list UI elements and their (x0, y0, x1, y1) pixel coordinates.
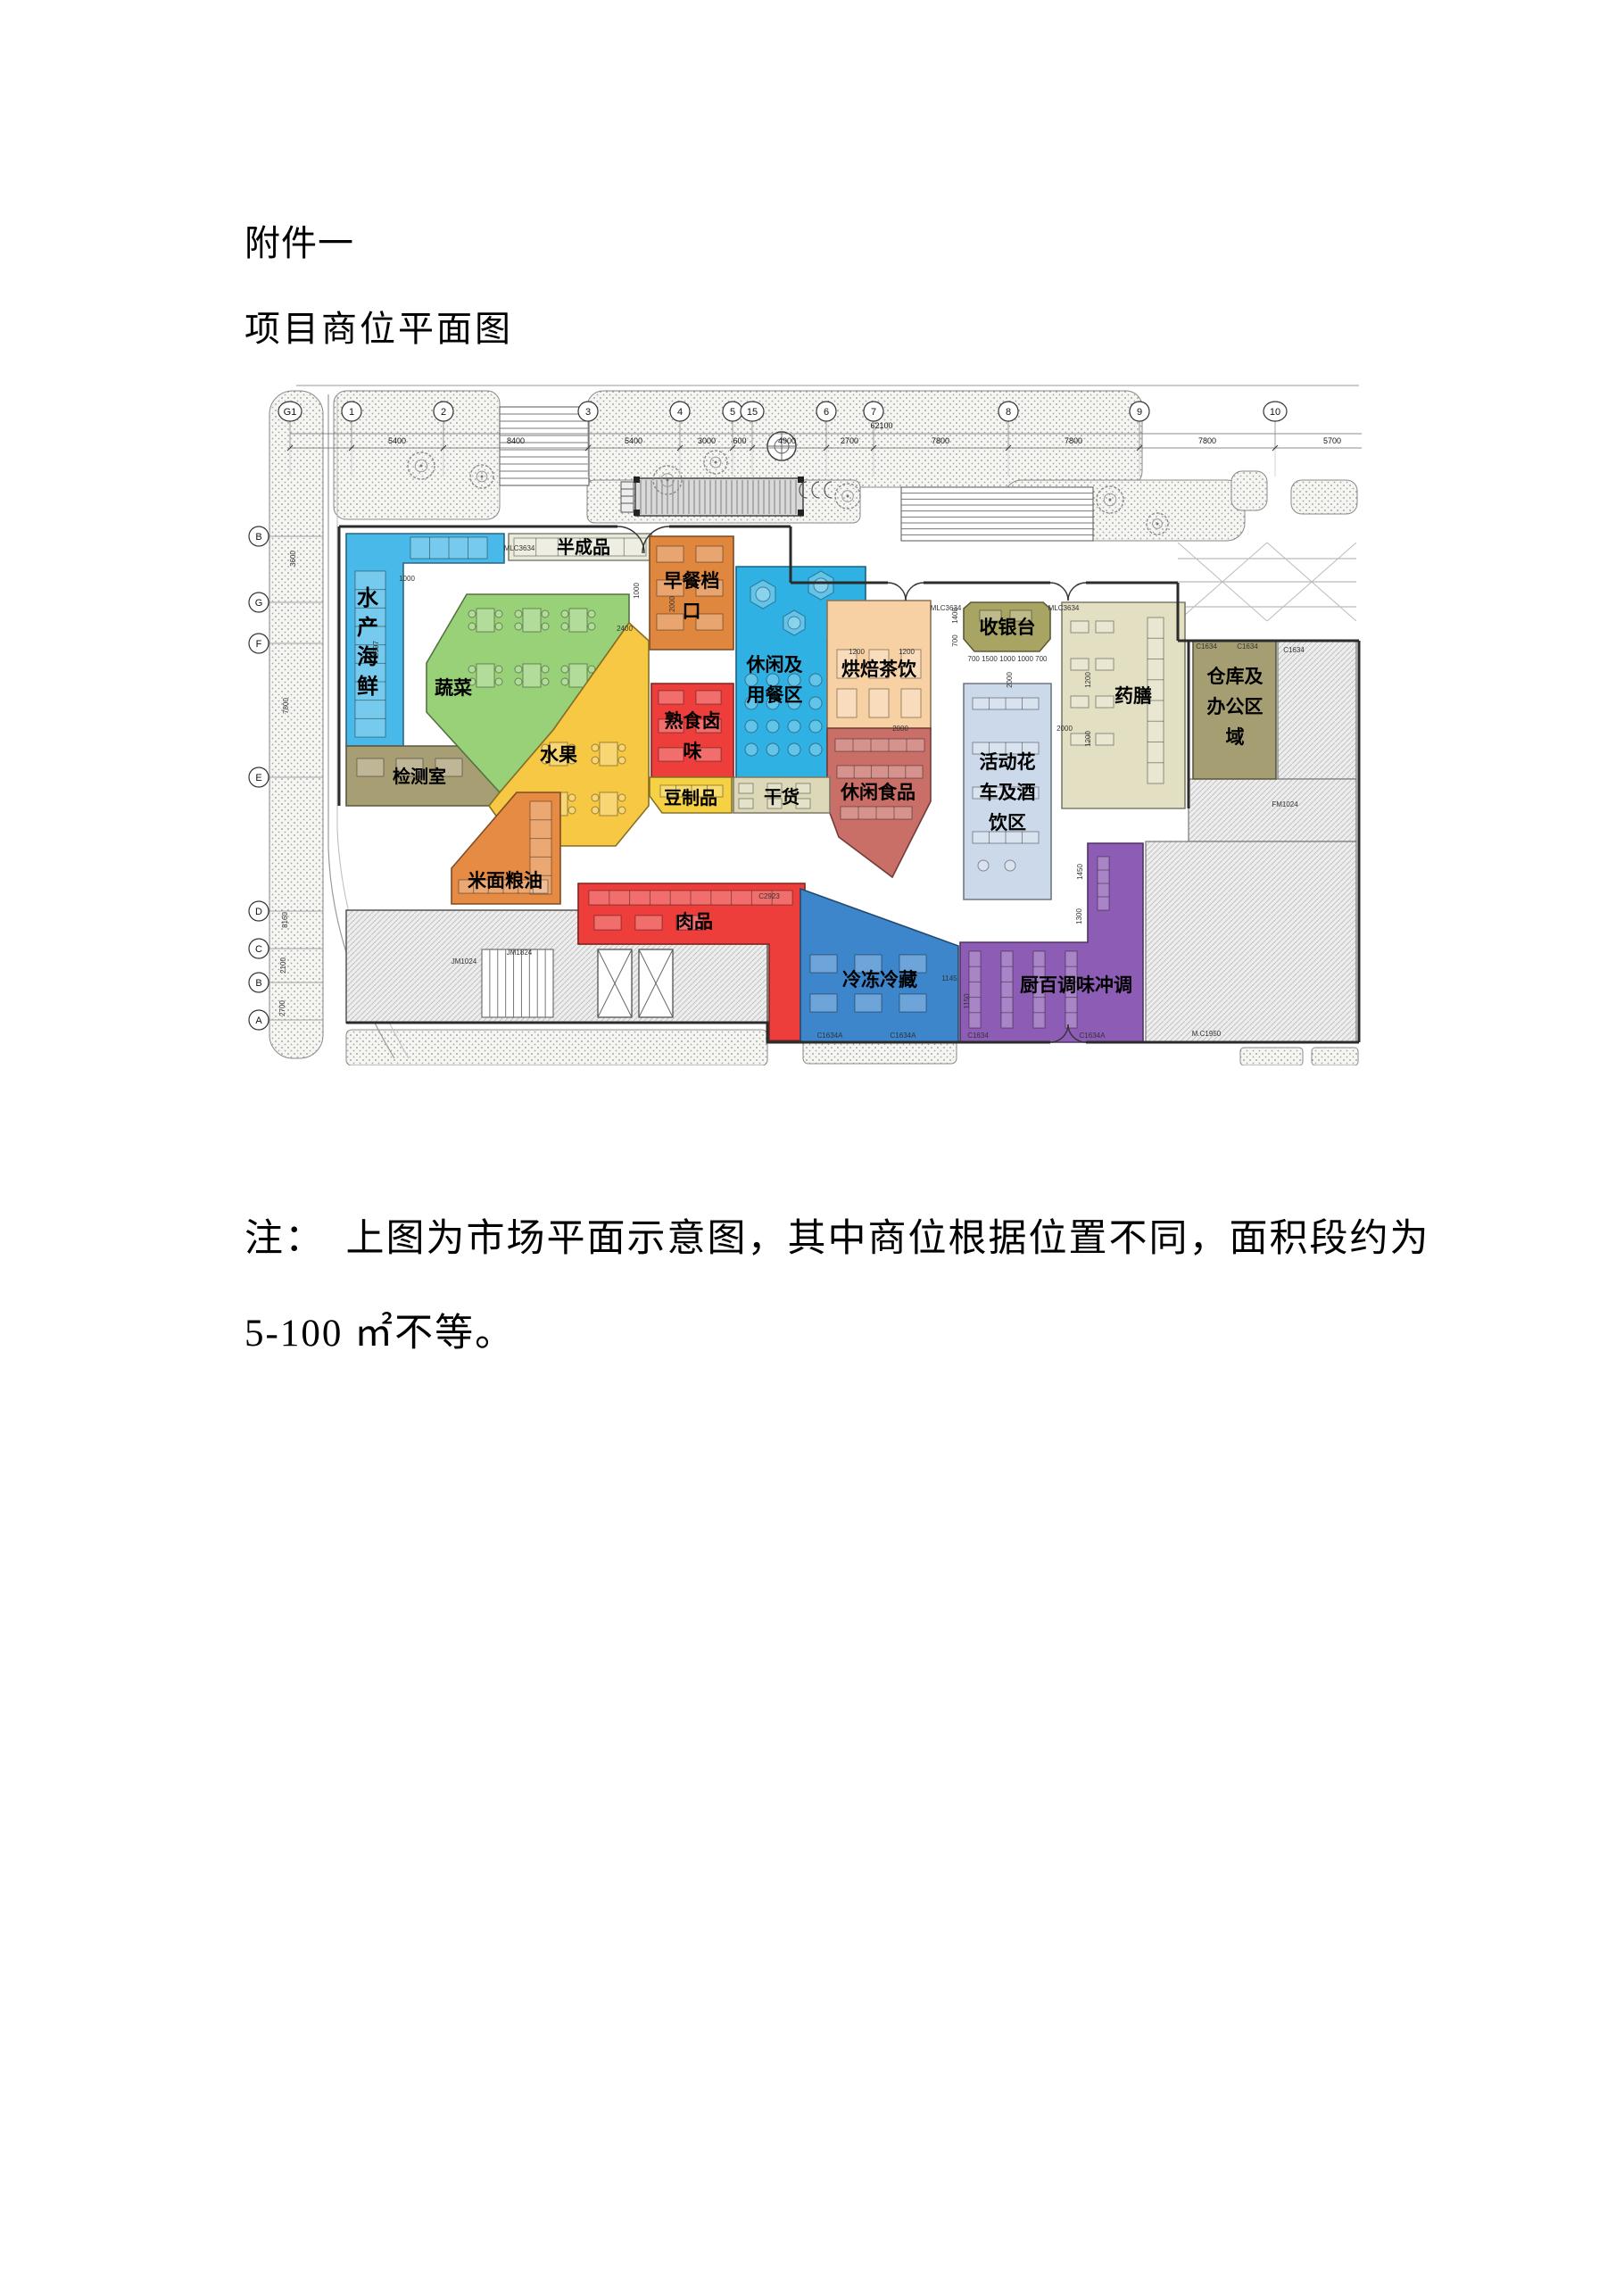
svg-text:1000: 1000 (399, 575, 415, 583)
svg-text:口: 口 (683, 601, 701, 622)
svg-text:1300: 1300 (1075, 908, 1083, 924)
svg-text:8: 8 (1006, 407, 1011, 418)
svg-text:MLC3634: MLC3634 (504, 544, 535, 552)
zone-warehouse: 仓库及办公区域 (1193, 641, 1276, 779)
svg-text:FM1024: FM1024 (1272, 800, 1298, 808)
svg-text:700: 700 (951, 634, 959, 647)
svg-text:1: 1 (349, 407, 354, 418)
svg-text:味: 味 (684, 742, 702, 762)
svg-text:D: D (255, 907, 262, 917)
svg-text:C1634: C1634 (967, 1032, 989, 1040)
note-line-1: 注： 上图为市场平面示意图，其中商位根据位置不同，面积段约为 (244, 1192, 1404, 1287)
svg-text:1200: 1200 (1084, 731, 1092, 747)
svg-text:药膳: 药膳 (1114, 685, 1152, 707)
svg-text:2000: 2000 (1006, 672, 1014, 688)
svg-text:肉品: 肉品 (675, 912, 713, 932)
svg-text:10: 10 (1270, 407, 1280, 418)
svg-text:收银台: 收银台 (980, 617, 1036, 638)
svg-text:2700: 2700 (278, 1000, 286, 1016)
floor-plan-svg: 水产海鲜检测室半成品早餐档口休闲及用餐区烘焙茶饮休闲食品收银台药膳仓库及办公区域… (243, 384, 1362, 1065)
svg-text:5: 5 (730, 407, 735, 418)
svg-text:1145: 1145 (941, 974, 957, 982)
zone-snack: 休闲食品 (827, 728, 931, 877)
svg-text:C2923: C2923 (758, 892, 780, 900)
svg-text:车及酒: 车及酒 (980, 782, 1036, 803)
zone-drygoods: 干货 (733, 777, 830, 813)
svg-text:休闲及: 休闲及 (746, 655, 804, 676)
zone-floatcar: 活动花车及酒饮区 (964, 684, 1051, 899)
svg-text:豆制品: 豆制品 (664, 788, 717, 808)
svg-text:5400: 5400 (388, 436, 406, 445)
note-line-2: 5-100 ㎡不等。 (244, 1287, 1404, 1381)
svg-text:MLC3634: MLC3634 (1048, 604, 1080, 612)
svg-text:熟食卤: 熟食卤 (665, 710, 721, 732)
svg-text:冷冻冷藏: 冷冻冷藏 (842, 969, 917, 991)
svg-text:2400: 2400 (617, 625, 633, 633)
svg-text:早餐档: 早餐档 (664, 570, 720, 592)
svg-text:4900: 4900 (778, 436, 796, 445)
svg-text:7: 7 (871, 407, 876, 418)
svg-text:C1634A: C1634A (891, 1032, 917, 1040)
svg-text:C1634: C1634 (1237, 642, 1258, 651)
svg-text:1000: 1000 (633, 583, 641, 599)
svg-text:F: F (256, 639, 262, 650)
svg-text:2000: 2000 (1056, 725, 1073, 733)
svg-text:B: B (255, 532, 261, 543)
svg-text:700 1500 1000 1000 700: 700 1500 1000 1000 700 (968, 655, 1048, 663)
svg-text:3600: 3600 (289, 551, 297, 567)
svg-text:域: 域 (1226, 726, 1245, 748)
svg-text:检测室: 检测室 (393, 766, 446, 787)
svg-text:8400: 8400 (507, 436, 525, 445)
svg-text:6: 6 (824, 407, 829, 418)
svg-text:JM1824: JM1824 (507, 949, 533, 957)
svg-text:7800: 7800 (1198, 436, 1216, 445)
svg-text:15: 15 (747, 407, 758, 418)
svg-text:活动花: 活动花 (980, 751, 1036, 773)
svg-text:2100: 2100 (279, 957, 287, 974)
svg-text:2000: 2000 (668, 596, 676, 612)
svg-text:2000: 2000 (892, 725, 908, 733)
zone-bakery: 烘焙茶饮 (827, 601, 931, 730)
svg-text:2700: 2700 (841, 436, 858, 445)
svg-text:7800: 7800 (932, 436, 949, 445)
zone-frozen: 冷冻冷藏 (800, 889, 958, 1042)
zone-medicine: 药膳 (1062, 602, 1185, 808)
svg-text:产: 产 (357, 615, 378, 640)
floor-plan-image: 水产海鲜检测室半成品早餐档口休闲及用餐区烘焙茶饮休闲食品收银台药膳仓库及办公区域… (243, 384, 1362, 1065)
svg-text:3: 3 (585, 407, 591, 418)
svg-text:JM1024: JM1024 (452, 957, 477, 966)
svg-text:鲜: 鲜 (357, 674, 378, 699)
svg-text:1450: 1450 (1076, 864, 1084, 880)
svg-text:5400: 5400 (625, 436, 642, 445)
zone-breakfast: 早餐档口 (650, 536, 733, 650)
zone-grain: 米面粮油 (452, 792, 560, 904)
svg-text:7800: 7800 (282, 698, 290, 714)
svg-text:米面粮油: 米面粮油 (468, 870, 543, 891)
svg-text:2: 2 (441, 407, 446, 418)
svg-text:办公区: 办公区 (1207, 697, 1264, 717)
attachment-title: 附件一 (244, 214, 354, 266)
svg-text:5700: 5700 (1323, 436, 1341, 445)
svg-text:7800: 7800 (1065, 436, 1082, 445)
svg-text:1150: 1150 (963, 993, 971, 1009)
note-paragraph: 注： 上图为市场平面示意图，其中商位根据位置不同，面积段约为 5-100 ㎡不等… (244, 1192, 1404, 1381)
zone-cooked: 熟食卤味 (651, 684, 733, 777)
svg-text:休闲食品: 休闲食品 (840, 782, 916, 803)
svg-text:M.C1950: M.C1950 (1192, 1030, 1222, 1038)
svg-text:1200: 1200 (1084, 672, 1092, 688)
svg-text:8160: 8160 (281, 912, 289, 928)
plan-title: 项目商位平面图 (244, 300, 513, 352)
svg-text:G1: G1 (284, 407, 297, 418)
svg-text:3000: 3000 (698, 436, 716, 445)
svg-text:9: 9 (1137, 407, 1142, 418)
zone-tofu: 豆制品 (650, 777, 732, 813)
svg-text:C: C (255, 944, 262, 955)
svg-text:饮区: 饮区 (988, 812, 1026, 833)
svg-text:1200: 1200 (849, 648, 865, 656)
svg-text:1200: 1200 (899, 648, 915, 656)
zone-cashier: 收银台 (964, 602, 1050, 651)
svg-text:9597: 9597 (372, 641, 380, 657)
svg-text:用餐区: 用餐区 (747, 684, 803, 706)
svg-text:C1634A: C1634A (1080, 1032, 1106, 1040)
svg-text:C1634: C1634 (1196, 642, 1217, 651)
document-page: 附件一 项目商位平面图 水产海鲜检测室半成品早餐档口休闲及用餐区烘焙茶饮休闲食品… (0, 0, 1624, 2296)
svg-text:E: E (255, 773, 261, 783)
svg-text:G: G (255, 598, 263, 609)
svg-text:1400: 1400 (951, 608, 959, 624)
svg-text:仓库及: 仓库及 (1206, 666, 1264, 687)
svg-text:C1634: C1634 (1283, 646, 1305, 654)
svg-text:水: 水 (357, 586, 379, 610)
svg-text:半成品: 半成品 (557, 536, 610, 558)
svg-text:B: B (255, 978, 261, 989)
svg-text:C1634A: C1634A (817, 1032, 844, 1040)
svg-text:水果: 水果 (540, 745, 577, 766)
svg-text:600: 600 (733, 436, 746, 445)
svg-text:蔬菜: 蔬菜 (435, 678, 472, 699)
svg-text:厨百调味冲调: 厨百调味冲调 (1020, 975, 1132, 996)
svg-text:烘焙茶饮: 烘焙茶饮 (841, 659, 917, 680)
svg-text:4: 4 (677, 407, 683, 418)
svg-text:干货: 干货 (764, 786, 800, 808)
svg-text:A: A (255, 1015, 262, 1026)
